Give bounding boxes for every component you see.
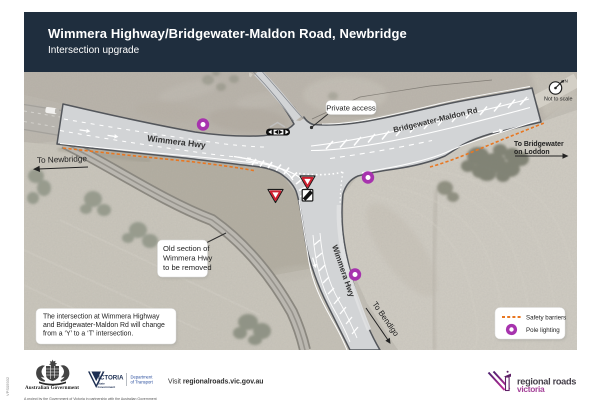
svg-text:To Bridgewater: To Bridgewater	[514, 141, 564, 148]
svg-text:on Loddon: on Loddon	[514, 149, 550, 156]
svg-text:VICTORIA: VICTORIA	[94, 375, 124, 382]
svg-text:and Bridgewater-Maldon Rd will: and Bridgewater-Maldon Rd will change	[43, 322, 165, 329]
svg-text:Safety barriers: Safety barriers	[526, 315, 566, 322]
svg-text:Wimmera Hwy: Wimmera Hwy	[163, 254, 213, 263]
svg-text:from a ‘Y’ to a ‘T’ intersecti: from a ‘Y’ to a ‘T’ intersection.	[43, 331, 133, 338]
svg-text:to be removed: to be removed	[163, 263, 212, 272]
svg-text:Old section of: Old section of	[163, 244, 210, 253]
svg-text:N: N	[565, 79, 568, 84]
svg-text:The intersection at Wimmera Hi: The intersection at Wimmera Highway	[43, 314, 160, 321]
svg-text:of Transport: of Transport	[131, 380, 154, 385]
svg-text:Pole lighting: Pole lighting	[526, 327, 560, 334]
svg-text:To Newbridge: To Newbridge	[37, 154, 88, 165]
svg-text:Not to scale: Not to scale	[544, 97, 572, 103]
svg-text:Australian Government: Australian Government	[25, 385, 79, 391]
svg-text:victoria: victoria	[517, 384, 545, 394]
svg-text:Private access: Private access	[326, 104, 376, 113]
svg-text:VPS05932: VPS05932	[5, 376, 10, 396]
svg-text:Visit regionalroads.vic.gov.au: Visit regionalroads.vic.gov.au	[168, 379, 263, 386]
svg-text:Government: Government	[98, 385, 116, 389]
